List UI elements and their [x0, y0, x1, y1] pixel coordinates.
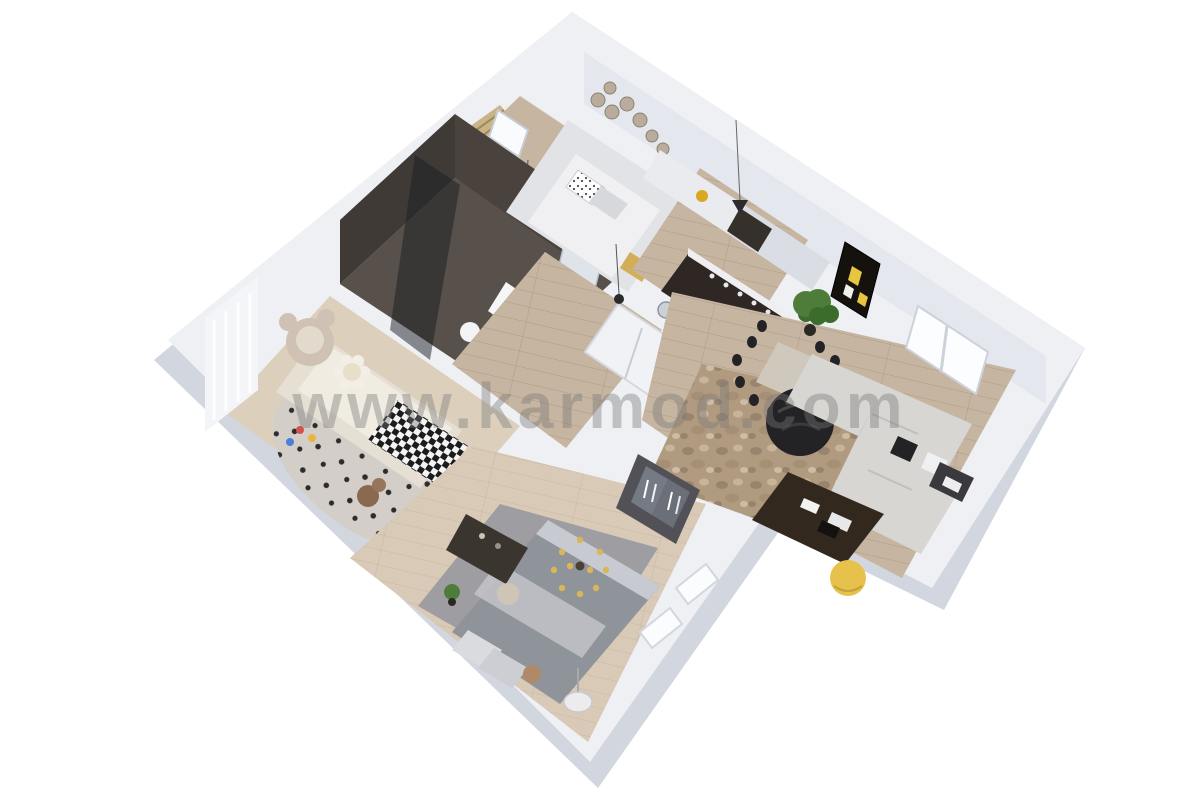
watermark-text: www.karmod.com: [291, 370, 907, 442]
floorplan-3d-scene: www.karmod.com: [0, 0, 1200, 800]
floorplan-render: www.karmod.com: [0, 0, 1200, 800]
fruit-bowl: [696, 190, 708, 202]
